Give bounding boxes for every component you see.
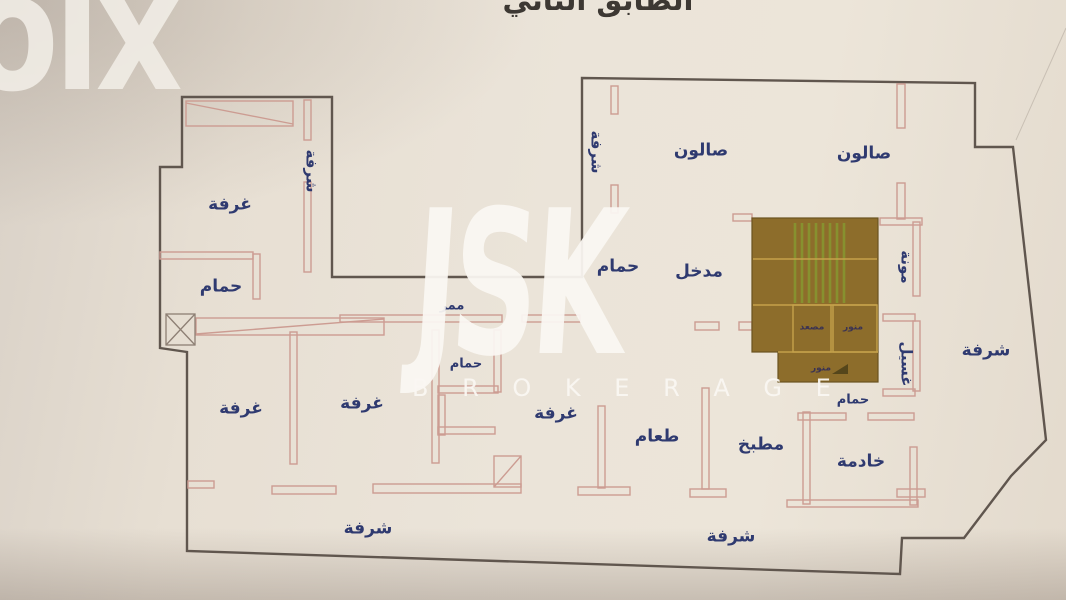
jsk-watermark-logo: JSK (407, 185, 626, 385)
room-label-laundry: غسيل (899, 341, 914, 386)
paper-crease (1016, 28, 1066, 140)
room-label-kitchen: مطبخ (738, 437, 784, 454)
room-label-balcony-left-strip: شرفة (304, 149, 319, 192)
room-label-salon-1: صالون (674, 143, 728, 160)
room-label-bath-top-left: حمام (200, 279, 243, 296)
olx-watermark-logo: olx (0, 0, 178, 115)
room-label-balcony-right: شرفة (962, 343, 1011, 360)
room-label-room-3: غرفة (340, 396, 384, 413)
room-label-room-top-left: غرفة (208, 197, 252, 214)
room-label-lightwell-2: منور (811, 365, 831, 374)
room-label-room-2: غرفة (219, 401, 263, 418)
room-label-balcony-bottom-left: شرفة (344, 521, 393, 538)
service-core (752, 218, 878, 382)
room-label-pantry: مونة (899, 250, 914, 283)
jsk-brokerage-watermark-text: B R O K E R A G E (412, 376, 844, 400)
room-label-lightwell-1: منور (843, 324, 863, 333)
room-label-entrance: مدخل (675, 264, 723, 281)
room-label-room-4: غرفة (534, 406, 578, 423)
room-label-maid-room: خادمة (837, 454, 885, 471)
room-label-dining: طعام (635, 429, 679, 446)
floorplan-photo: الطابق الثاني (0, 0, 1066, 600)
room-label-salon-2: صالون (837, 146, 891, 163)
room-label-elevator: مصعد (800, 324, 825, 333)
room-label-balcony-bottom-right: شرفة (707, 529, 756, 546)
